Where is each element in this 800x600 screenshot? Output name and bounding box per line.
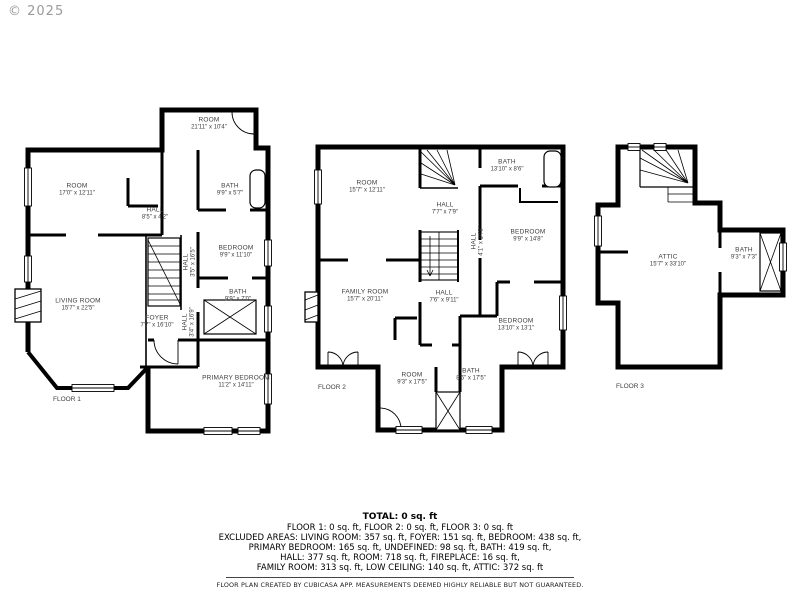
- room-label: BEDROOM 9'9" x 14'8": [511, 229, 546, 244]
- door-arc: [154, 340, 178, 364]
- floor2-label: FLOOR 2: [318, 384, 346, 391]
- summary-line: PRIMARY BEDROOM: 165 sq. ft, UNDEFINED: …: [0, 543, 800, 553]
- summary-line: HALL: 377 sq. ft, ROOM: 718 sq. ft, FIRE…: [0, 553, 800, 563]
- floor1-bay-walls: [28, 352, 148, 388]
- room-label: HALL 4'1" x 14'8": [471, 226, 486, 256]
- fireplace: [15, 289, 41, 322]
- door-arc: [232, 112, 254, 134]
- room-label: HALL 3'5" x 16'5": [183, 247, 198, 277]
- room-label: BATH 13'10" x 8'6": [491, 159, 524, 174]
- summary-line: FAMILY ROOM: 313 sq. ft, LOW CEILING: 14…: [0, 563, 800, 573]
- floor1-hall-walls: [146, 235, 181, 367]
- summary-total: TOTAL: 0 sq. ft: [0, 512, 800, 523]
- room-label: BEDROOM 13'10" x 13'1": [498, 318, 534, 333]
- room-label: BATH 9'9" x 5'7": [217, 183, 243, 198]
- divider-line: [226, 577, 574, 578]
- floorplan-page: © 2025: [0, 0, 800, 600]
- floor3-label: FLOOR 3: [616, 383, 644, 390]
- floor3-plan: [595, 144, 787, 368]
- floor1-label: FLOOR 1: [53, 396, 81, 403]
- room-label: ROOM 9'3" x 17'5": [397, 372, 427, 387]
- closet: [436, 392, 460, 430]
- room-label: BEDROOM 9'9" x 11'10": [219, 245, 254, 260]
- door-arc: [380, 408, 401, 429]
- room-label: BATH 9'9" x 7'0": [225, 289, 251, 304]
- room-label: HALL 8'5" x 4'2": [142, 207, 168, 222]
- room-label: ROOM 21'11" x 10'4": [191, 117, 227, 132]
- bathtub: [544, 151, 561, 187]
- floor2-staircase: [421, 232, 458, 280]
- summary-line: FLOOR 1: 0 sq. ft, FLOOR 2: 0 sq. ft, FL…: [0, 523, 800, 533]
- area-summary: TOTAL: 0 sq. ft FLOOR 1: 0 sq. ft, FLOOR…: [0, 512, 800, 589]
- floor2-winder-stairs: [420, 150, 458, 188]
- room-label: ROOM 15'7" x 12'11": [349, 180, 385, 195]
- room-label: PRIMARY BEDROOM 11'2" x 14'11": [202, 375, 270, 390]
- floor3-winder-stairs: [640, 149, 695, 202]
- floor1-staircase: [148, 238, 180, 306]
- room-label: BATH 8'6" x 17'5": [456, 368, 486, 383]
- room-label: FAMILY ROOM 15'7" x 20'11": [342, 289, 389, 304]
- room-label: FOYER 7'7" x 16'10": [141, 315, 174, 330]
- room-label: HALL 3'4" x 16'9": [182, 307, 197, 337]
- room-label: BATH 9'3" x 7'3": [731, 247, 757, 262]
- room-label: HALL 7'7" x 7'9": [432, 202, 458, 217]
- floorplan-canvas: [0, 0, 800, 600]
- room-label: ATTIC 15'7" x 33'10": [650, 254, 686, 269]
- room-label: HALL 7'6" x 9'11": [429, 290, 458, 305]
- room-label: ROOM 17'0" x 12'11": [59, 183, 95, 198]
- summary-line: EXCLUDED AREAS: LIVING ROOM: 357 sq. ft,…: [0, 533, 800, 543]
- room-label: LIVING ROOM 15'7" x 22'5": [55, 298, 101, 313]
- fireplace: [305, 292, 318, 322]
- bathtub: [250, 170, 265, 208]
- shower: [204, 300, 256, 334]
- shower: [760, 233, 781, 291]
- disclaimer-text: FLOOR PLAN CREATED BY CUBICASA APP. MEAS…: [0, 581, 800, 589]
